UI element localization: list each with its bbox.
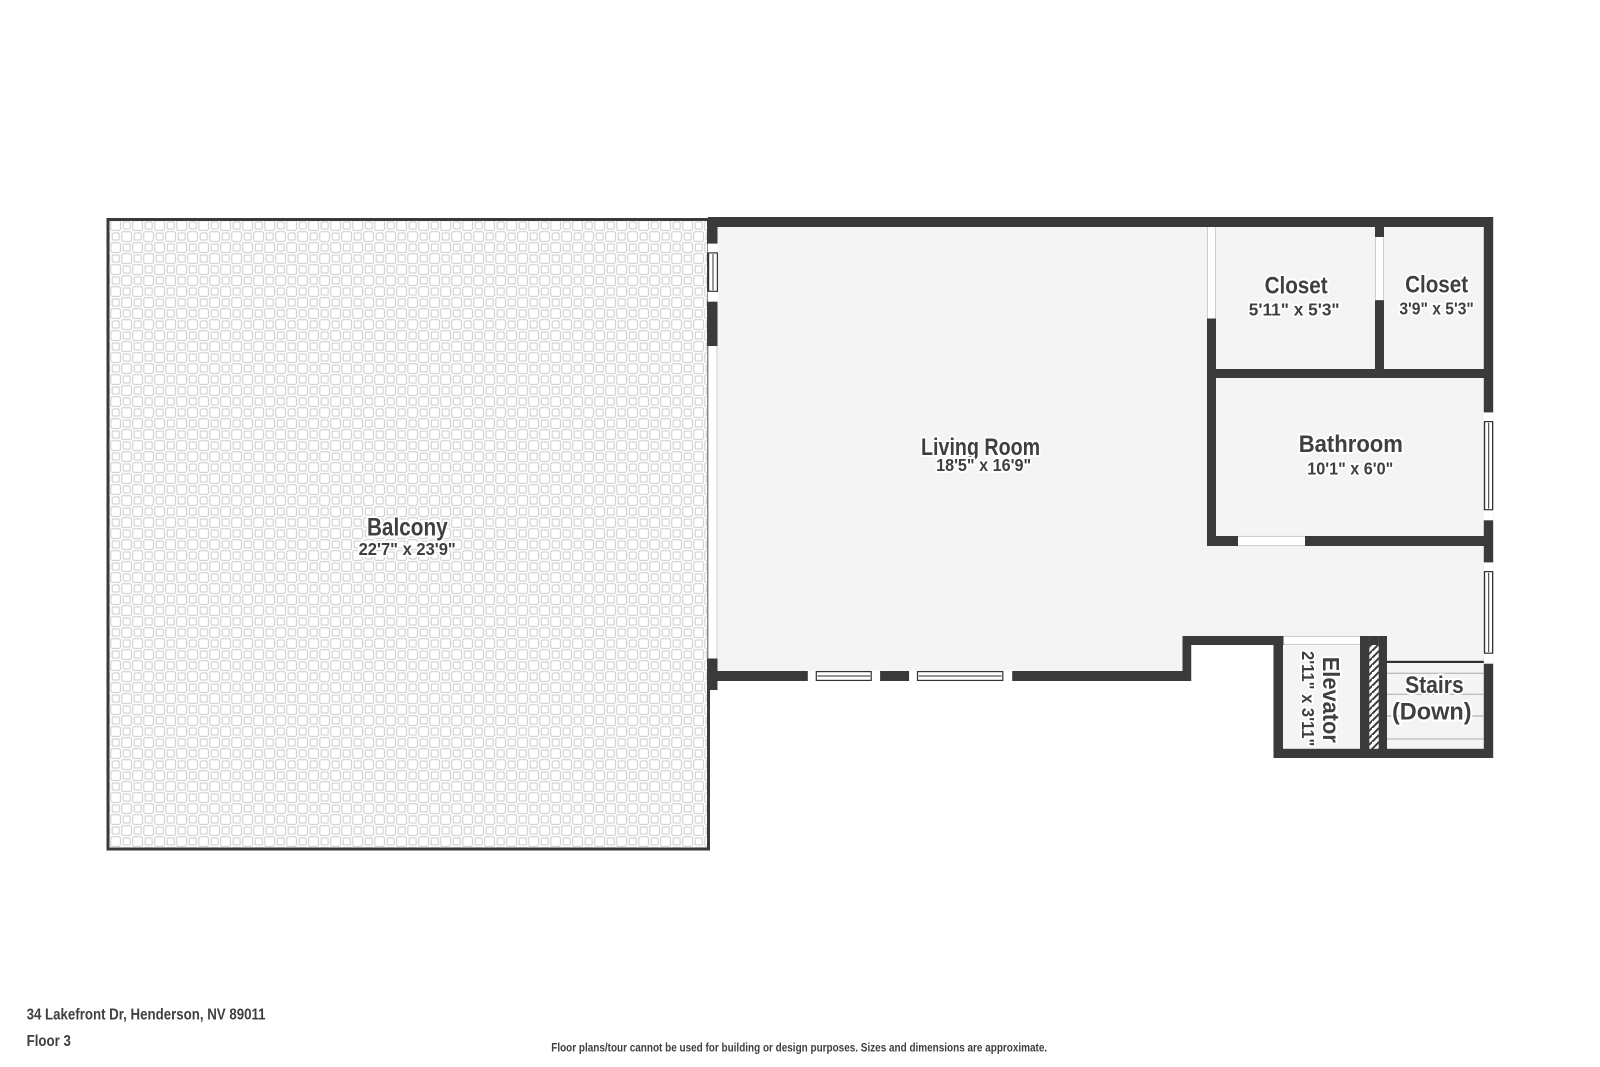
svg-text:22'7" x 23'9": 22'7" x 23'9" [359, 538, 456, 559]
svg-text:Stairs: Stairs [1405, 672, 1464, 699]
svg-text:18'5" x 16'9": 18'5" x 16'9" [936, 455, 1031, 475]
svg-text:Closet: Closet [1405, 271, 1469, 298]
svg-text:2'11" x 3'11": 2'11" x 3'11" [1298, 651, 1319, 746]
svg-text:Closet: Closet [1265, 272, 1329, 299]
svg-text:Balcony: Balcony [367, 513, 448, 541]
svg-text:Bathroom: Bathroom [1299, 430, 1403, 457]
svg-text:34 Lakefront Dr, Henderson, NV: 34 Lakefront Dr, Henderson, NV 89011 [27, 1006, 266, 1023]
svg-text:Floor 3: Floor 3 [27, 1033, 71, 1050]
svg-text:(Down): (Down) [1392, 698, 1472, 725]
svg-text:10'1" x 6'0": 10'1" x 6'0" [1307, 459, 1393, 479]
svg-text:Floor plans/tour cannot be use: Floor plans/tour cannot be used for buil… [551, 1042, 1047, 1055]
svg-text:5'11" x 5'3": 5'11" x 5'3" [1249, 299, 1340, 319]
svg-text:3'9" x 5'3": 3'9" x 5'3" [1399, 299, 1474, 319]
svg-text:Elevator: Elevator [1318, 657, 1344, 743]
